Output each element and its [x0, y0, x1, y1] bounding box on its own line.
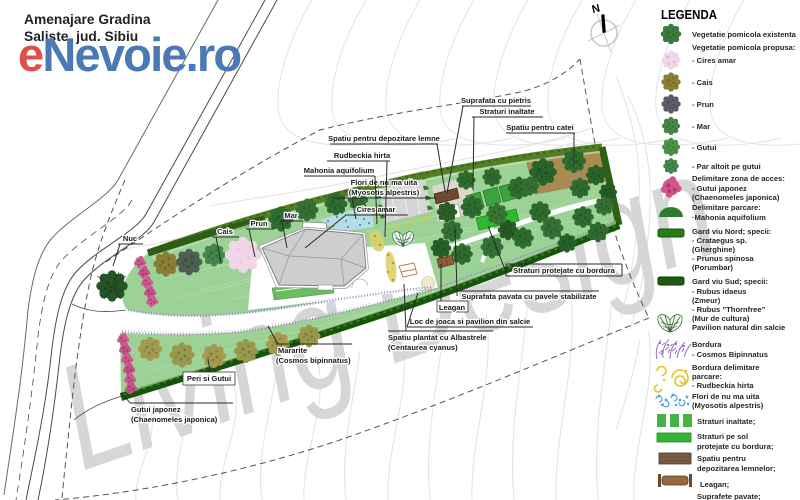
- svg-text:(Chaenomeles japonica): (Chaenomeles japonica): [692, 193, 780, 202]
- svg-text:Bordura: Bordura: [692, 340, 722, 349]
- svg-text:(Myosotis alpestris): (Myosotis alpestris): [692, 401, 764, 410]
- svg-text:- Rubus ”Thornfree”: - Rubus ”Thornfree”: [692, 305, 766, 314]
- svg-text:Gutui japonez: Gutui japonez: [131, 405, 181, 414]
- svg-text:eNevoie.ro: eNevoie.ro: [18, 28, 240, 81]
- svg-text:- Cais: - Cais: [692, 78, 713, 87]
- svg-text:parcare:: parcare:: [692, 372, 722, 381]
- svg-text:- Gutui japonez: - Gutui japonez: [692, 184, 747, 193]
- svg-text:- Crataegus sp.: - Crataegus sp.: [692, 236, 747, 245]
- svg-text:(Porumbar): (Porumbar): [692, 263, 733, 272]
- svg-text:Mararite: Mararite: [278, 346, 307, 355]
- svg-text:- Gutui: - Gutui: [692, 143, 716, 152]
- svg-text:Cais: Cais: [217, 227, 233, 236]
- svg-text:(Chaenomeles japonica): (Chaenomeles japonica): [131, 415, 218, 424]
- svg-text:Suprafata pavata cu pavele sta: Suprafata pavata cu pavele stabilizate: [461, 292, 596, 301]
- svg-text:Vegetatie pomicola existenta: Vegetatie pomicola existenta: [692, 30, 797, 39]
- svg-text:Pavilion natural din salcie: Pavilion natural din salcie: [692, 323, 785, 332]
- svg-text:Straturi protejate cu bordura: Straturi protejate cu bordura: [513, 266, 616, 275]
- svg-text:(Myosotis alpestris): (Myosotis alpestris): [349, 188, 420, 197]
- svg-text:Straturi pe sol: Straturi pe sol: [697, 432, 748, 441]
- svg-text:- Prunus spinosa: - Prunus spinosa: [692, 254, 754, 263]
- svg-text:Spatiu pentru: Spatiu pentru: [697, 454, 746, 463]
- svg-text:·Mahonia aquifolium: ·Mahonia aquifolium: [692, 213, 766, 222]
- svg-text:Spatiu pentru catei: Spatiu pentru catei: [506, 123, 574, 132]
- svg-text:Amenajare Gradina: Amenajare Gradina: [24, 12, 151, 27]
- svg-text:- Par altoit pe gutui: - Par altoit pe gutui: [692, 162, 761, 171]
- svg-text:Spatiu pentru depozitare lemne: Spatiu pentru depozitare lemne: [328, 134, 440, 143]
- svg-text:(Zmeur): (Zmeur): [692, 296, 721, 305]
- svg-text:(Mur de cultura): (Mur de cultura): [692, 314, 750, 323]
- svg-text:Spatiu plantat cu Albastrele: Spatiu plantat cu Albastrele: [388, 333, 487, 342]
- svg-text:Flori de nu ma uita: Flori de nu ma uita: [351, 178, 419, 187]
- svg-text:- Prun: - Prun: [692, 100, 714, 109]
- svg-text:(Centaurea cyanus): (Centaurea cyanus): [388, 343, 458, 352]
- svg-text:Leagan: Leagan: [439, 303, 466, 312]
- svg-text:- Cosmos Bipinnatus: - Cosmos Bipinnatus: [692, 350, 768, 359]
- svg-text:Nuc: Nuc: [123, 234, 137, 243]
- svg-text:Peri si Gutui: Peri si Gutui: [187, 374, 231, 383]
- svg-text:Mar: Mar: [284, 211, 297, 220]
- svg-text:Gard viu Nord; specii:: Gard viu Nord; specii:: [692, 227, 771, 236]
- svg-text:protejate cu bordura;: protejate cu bordura;: [697, 442, 773, 451]
- svg-text:(Cosmos bipinnatus): (Cosmos bipinnatus): [276, 356, 351, 365]
- svg-text:Bordura delimitare: Bordura delimitare: [692, 363, 760, 372]
- svg-text:Straturi inaltate: Straturi inaltate: [479, 107, 534, 116]
- svg-text:- Rudbeckia hirta: - Rudbeckia hirta: [692, 381, 754, 390]
- svg-text:depozitarea lemnelor;: depozitarea lemnelor;: [697, 464, 776, 473]
- svg-text:Flori de nu ma uita: Flori de nu ma uita: [692, 392, 760, 401]
- svg-text:Suprafata cu pietris: Suprafata cu pietris: [461, 96, 531, 105]
- svg-text:Delimitare parcare:: Delimitare parcare:: [692, 203, 761, 212]
- svg-text:(Gherghine): (Gherghine): [692, 245, 736, 254]
- svg-text:Suprafete pavate;: Suprafete pavate;: [697, 492, 761, 500]
- svg-text:- Mar: - Mar: [692, 122, 710, 131]
- svg-text:Delimitare zona de acces:: Delimitare zona de acces:: [692, 174, 785, 183]
- svg-text:Mahonia aquifolium: Mahonia aquifolium: [304, 166, 375, 175]
- svg-text:LEGENDA: LEGENDA: [661, 7, 718, 22]
- svg-text:Rudbeckia hirta: Rudbeckia hirta: [334, 151, 391, 160]
- svg-text:Loc de joaca si pavilion din s: Loc de joaca si pavilion din salcie: [410, 317, 530, 326]
- svg-text:Vegetatie pomicola propusa:: Vegetatie pomicola propusa:: [692, 43, 795, 52]
- svg-text:Gard viu Sud; specii:: Gard viu Sud; specii:: [692, 277, 768, 286]
- svg-text:Leagan;: Leagan;: [700, 480, 729, 489]
- svg-text:- Cires amar: - Cires amar: [692, 56, 736, 65]
- svg-text:Prun: Prun: [250, 219, 268, 228]
- svg-text:Straturi inaltate;: Straturi inaltate;: [697, 417, 755, 426]
- svg-text:- Rubus idaeus: - Rubus idaeus: [692, 287, 746, 296]
